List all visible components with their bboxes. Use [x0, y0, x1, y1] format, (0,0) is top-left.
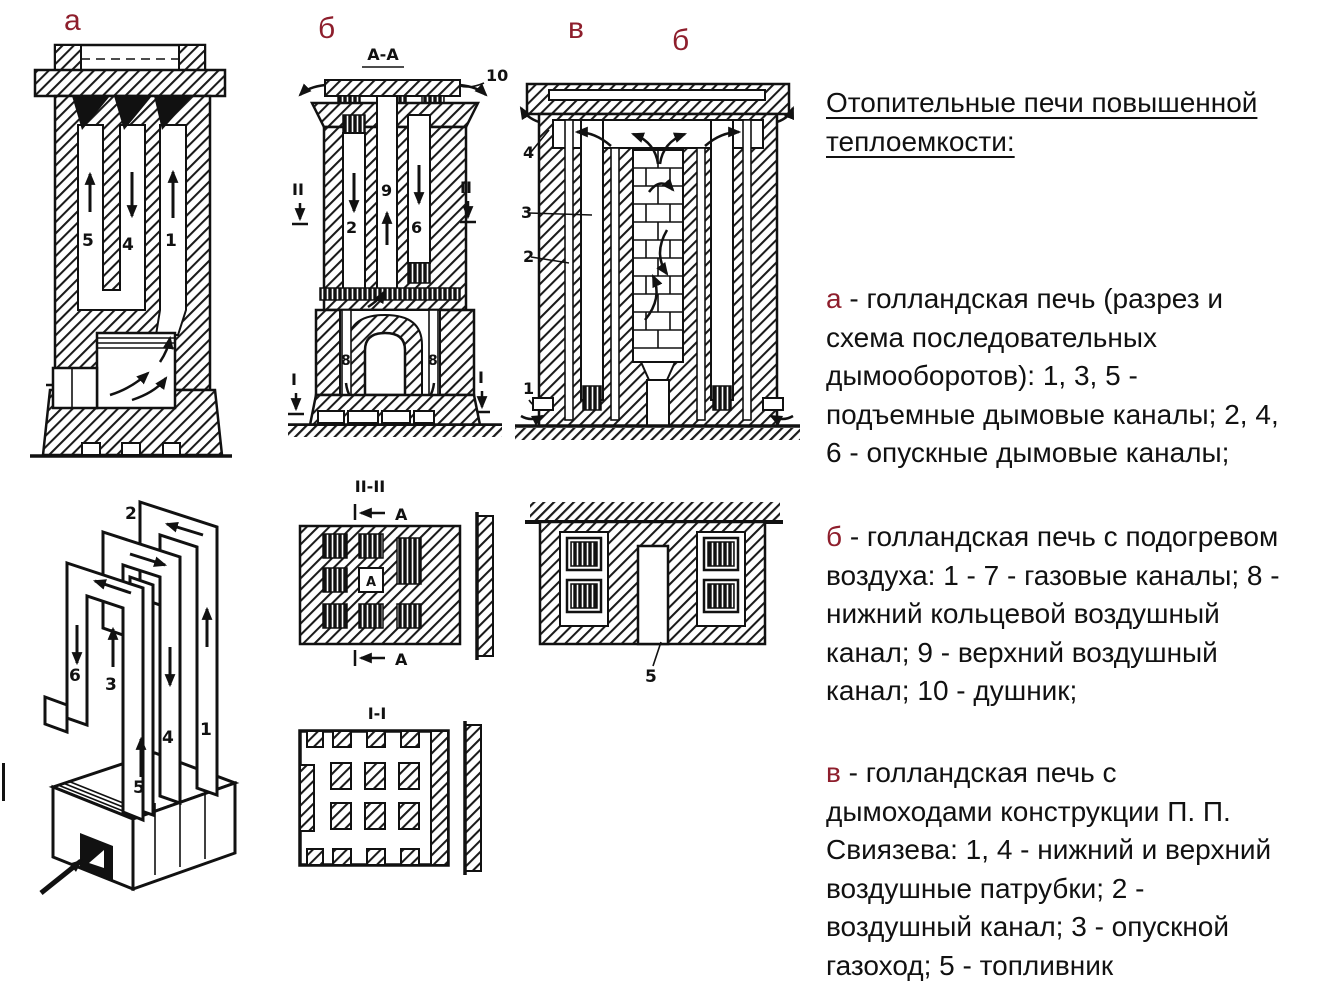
caption-letter-b: б [826, 521, 842, 552]
datum-bottom: А [355, 650, 408, 669]
channel-label: 2 [125, 504, 137, 524]
callout: 1 [523, 379, 534, 398]
channel-label: 6 [411, 218, 422, 237]
firebox-opening [638, 546, 668, 644]
caption-body-v: - голландская печь с дымоходами конструк… [826, 757, 1271, 981]
channel-label: 4 [162, 728, 174, 748]
caption-paragraph-a: а - голландская печь (разрез и схема пос… [826, 280, 1312, 473]
section-ii-plan: II-II А А А [285, 468, 500, 688]
vent-callout: 10 [486, 66, 508, 85]
cell-label: А [366, 575, 376, 590]
caption-body-a: - голландская печь (разрез и схема после… [826, 283, 1279, 468]
channel-label: 1 [165, 231, 177, 251]
channel-label: 5 [133, 778, 145, 798]
air-inlet-arrow [41, 861, 81, 893]
caption-paragraph-v: в - голландская печь с дымоходами констр… [826, 754, 1312, 985]
caption-paragraph-b: б - голландская печь с подогревом воздух… [826, 518, 1312, 711]
channel-label: 6 [69, 666, 81, 686]
caption-panel: Отопительные печи повышенной теплоемкост… [826, 84, 1312, 974]
diagram-a-section: 5 4 1 [10, 40, 240, 470]
stove-b-body: 2 9 6 [324, 96, 466, 310]
flue-openings: А [323, 534, 421, 628]
channel-label: 4 [122, 235, 134, 255]
cut-mark: II [292, 180, 304, 199]
caption-letter-a: а [826, 283, 842, 314]
channel-label: 3 [105, 675, 117, 695]
section-title: I-I [368, 704, 387, 723]
firebox-callout: 5 [645, 667, 657, 687]
datum-top: А [355, 504, 408, 524]
air-in-arrow [521, 416, 543, 419]
air-ring-label: 8 [341, 353, 351, 369]
page: а б в б 5 4 1 [0, 0, 1336, 990]
air-ring-label: 8 [428, 353, 438, 369]
warm-air-arrow [300, 85, 325, 95]
stove-a-flues: 5 4 1 [72, 96, 192, 335]
page-title: Отопительные печи повышенной теплоемкост… [826, 84, 1257, 161]
diagram-a-scheme: 6 3 5 4 1 2 [5, 485, 245, 905]
room-wall [465, 721, 481, 875]
stove-b-firebox: 8 8 [288, 288, 502, 437]
cut-mark: I [478, 368, 484, 387]
caption-letter-v: в [826, 757, 841, 788]
diagram-v-section: 4 3 2 1 [515, 70, 800, 460]
cut-mark: II [460, 178, 472, 197]
plan-left-windows [560, 532, 608, 626]
warm-air-arrow [460, 85, 486, 95]
room-wall [477, 512, 493, 660]
plan-outline [300, 731, 448, 865]
figure-label-v: в [568, 14, 584, 44]
section-mark-aa: А-А [367, 45, 399, 64]
callout: 4 [523, 143, 534, 162]
channel-label: 9 [381, 181, 392, 200]
section-title: II-II [355, 477, 385, 496]
diagram-b-section: А-А 10 2 9 6 II [280, 15, 510, 435]
datum-label: А [395, 650, 408, 669]
datum-label: А [395, 505, 408, 524]
callout-leader [653, 642, 661, 666]
air-in-arrow [771, 416, 793, 419]
plan-right-windows [697, 532, 745, 626]
figure-label-a: а [64, 6, 81, 36]
diagram-v-plan: 5 [525, 490, 790, 685]
channel-label: 2 [346, 218, 357, 237]
cut-mark: I [291, 370, 297, 389]
channel-label: 1 [200, 720, 212, 740]
plan-roof [525, 502, 783, 522]
channel-label: 5 [82, 231, 94, 251]
caption-body-b: - голландская печь с подогревом воздуха:… [826, 521, 1280, 706]
section-i-plan: I-I [285, 695, 500, 895]
figure-label-b2: б [672, 26, 689, 56]
